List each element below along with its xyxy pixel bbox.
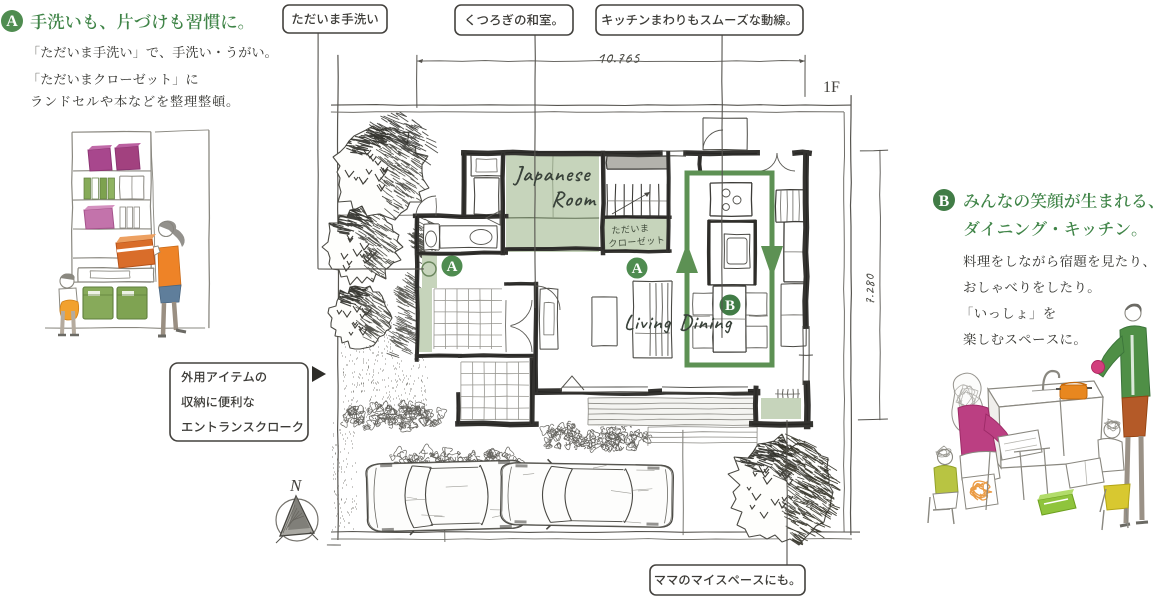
svg-text:A: A [447,259,458,275]
svg-text:N: N [289,476,303,495]
svg-text:B: B [725,298,735,314]
svg-text:B: B [939,193,950,210]
svg-text:1F: 1F [823,79,840,96]
svg-text:A: A [632,261,643,277]
svg-text:A: A [6,13,18,30]
